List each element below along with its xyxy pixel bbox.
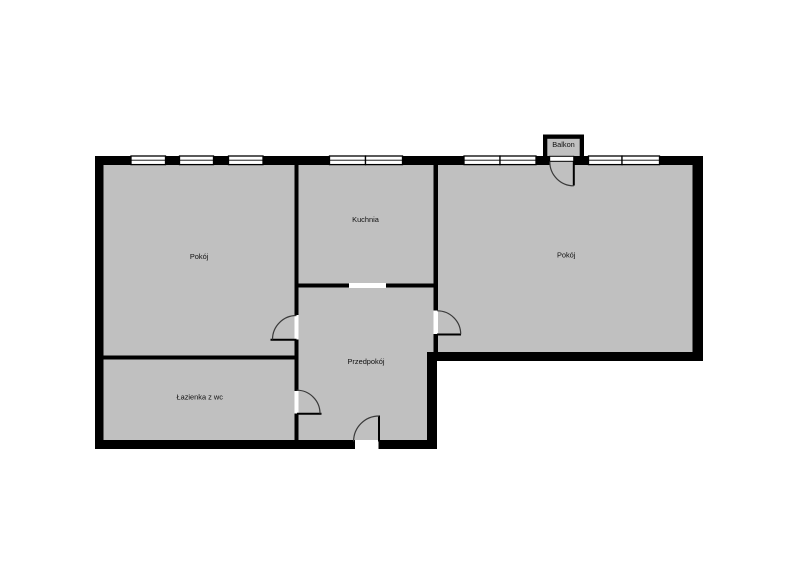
svg-text:Przedpokój: Przedpokój	[348, 357, 385, 366]
svg-text:Balkon: Balkon	[552, 140, 575, 149]
svg-text:Pokój: Pokój	[190, 252, 209, 261]
svg-text:Łazienka z wc: Łazienka z wc	[176, 393, 223, 402]
svg-text:Pokój: Pokój	[557, 251, 576, 260]
svg-text:Kuchnia: Kuchnia	[352, 215, 380, 224]
